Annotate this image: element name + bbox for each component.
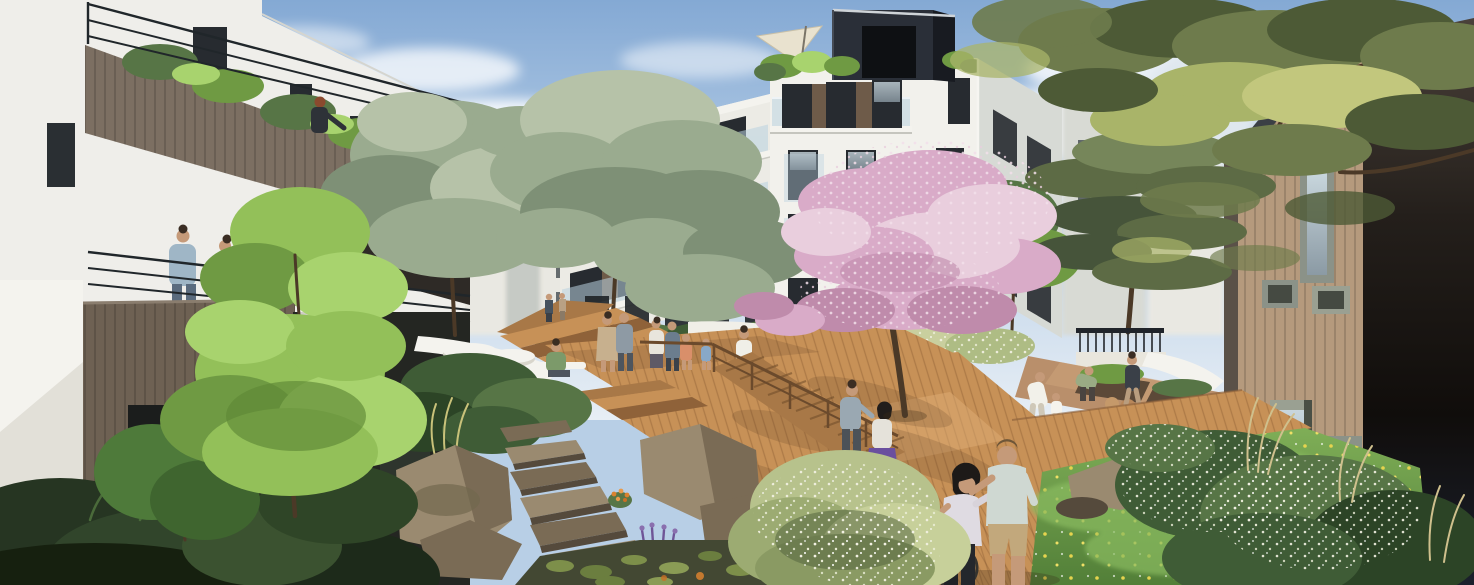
architectural-rendering xyxy=(0,0,1474,585)
scene-canvas xyxy=(0,0,1474,585)
orange-flowers xyxy=(608,489,632,508)
